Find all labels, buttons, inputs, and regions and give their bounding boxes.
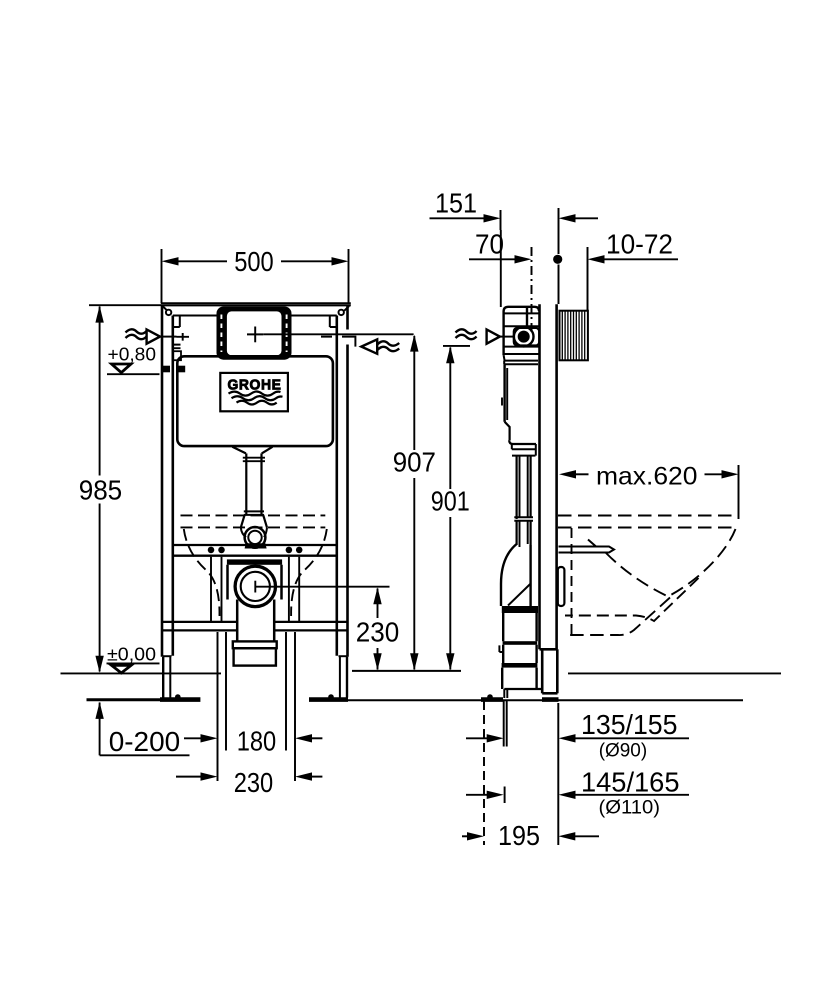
svg-text:0-200: 0-200 [109, 726, 181, 757]
svg-text:+0,80: +0,80 [108, 344, 157, 365]
svg-text:10-72: 10-72 [606, 229, 673, 260]
svg-text:151: 151 [435, 188, 477, 219]
svg-text:230: 230 [234, 767, 274, 798]
svg-text:145/165: 145/165 [581, 767, 680, 798]
svg-text:(Ø110): (Ø110) [599, 797, 661, 819]
svg-text:±0,00: ±0,00 [107, 644, 156, 665]
svg-text:500: 500 [234, 246, 274, 277]
svg-text:(Ø90): (Ø90) [599, 740, 648, 762]
svg-text:70: 70 [475, 229, 504, 260]
svg-text:901: 901 [431, 486, 470, 517]
svg-text:230: 230 [356, 616, 400, 647]
svg-text:195: 195 [498, 820, 540, 851]
svg-text:max.620: max.620 [596, 463, 698, 491]
svg-text:180: 180 [237, 726, 277, 757]
svg-text:135/155: 135/155 [581, 709, 678, 740]
svg-text:907: 907 [393, 447, 436, 478]
svg-text:985: 985 [79, 474, 123, 505]
